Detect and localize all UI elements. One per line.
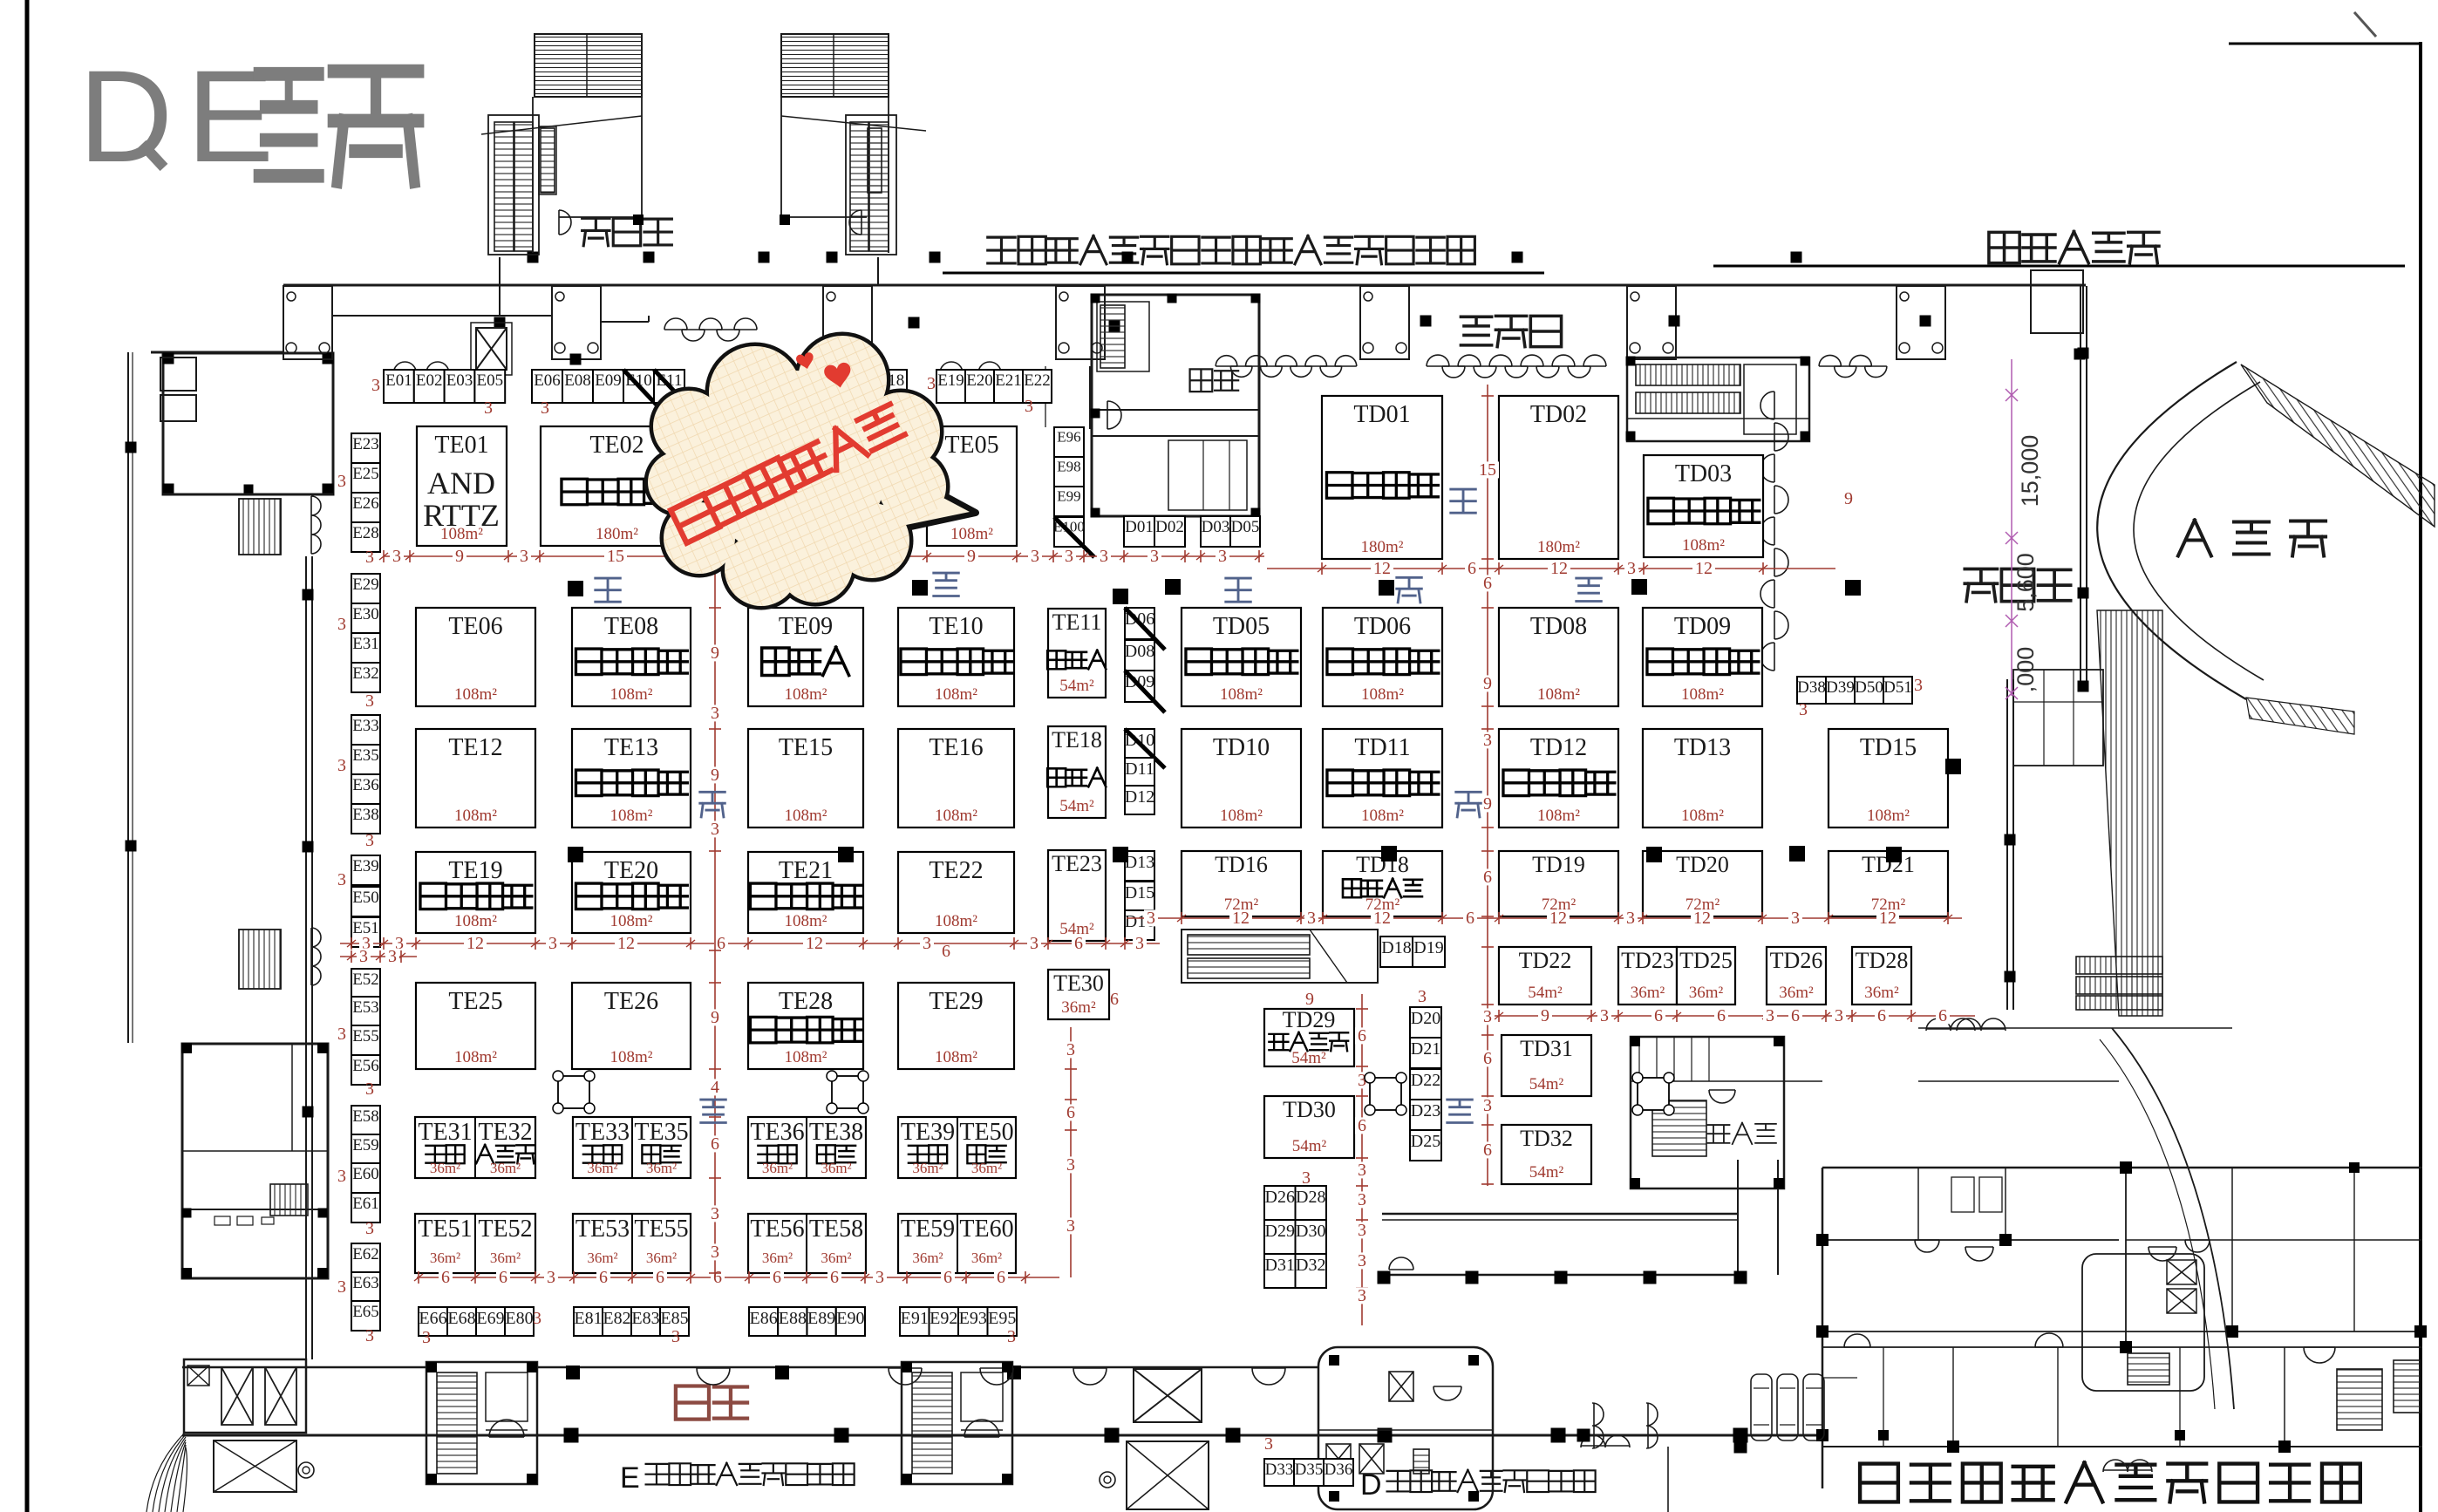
svg-text:3: 3: [371, 376, 380, 395]
svg-text:3: 3: [388, 947, 397, 966]
svg-text:TE21: TE21: [779, 857, 833, 884]
svg-text:3: 3: [1025, 397, 1033, 416]
svg-text:TE05: TE05: [944, 432, 998, 459]
svg-text:TD11: TD11: [1354, 734, 1410, 761]
svg-text:TD10: TD10: [1213, 734, 1270, 761]
svg-text:TE23: TE23: [1052, 851, 1102, 876]
svg-text:3: 3: [337, 1025, 346, 1044]
svg-text:4: 4: [711, 1078, 719, 1097]
svg-text:TD25: TD25: [1679, 948, 1733, 973]
svg-text:108m²: 108m²: [785, 807, 827, 825]
svg-text:6: 6: [711, 1134, 719, 1154]
svg-text:D05: D05: [1231, 518, 1260, 536]
svg-text:9: 9: [711, 1008, 719, 1027]
svg-text:E95: E95: [988, 1309, 1016, 1328]
svg-text:TE35: TE35: [634, 1119, 688, 1146]
svg-text:TE13: TE13: [604, 734, 658, 761]
svg-text:TD03: TD03: [1675, 460, 1732, 487]
svg-text:54m²: 54m²: [1528, 984, 1563, 1002]
svg-text:3: 3: [392, 547, 401, 566]
svg-text:6: 6: [656, 1268, 664, 1287]
svg-text:TE01: TE01: [434, 432, 488, 459]
svg-text:D32: D32: [1296, 1256, 1325, 1275]
svg-text:6: 6: [1938, 1006, 1947, 1025]
svg-text:3: 3: [923, 934, 931, 953]
svg-text:E99: E99: [1057, 487, 1080, 504]
svg-text:15: 15: [1479, 460, 1496, 480]
svg-text:TD16: TD16: [1215, 852, 1268, 877]
svg-text:3: 3: [422, 1328, 431, 1347]
svg-text:TD12: TD12: [1530, 734, 1587, 761]
svg-text:9: 9: [967, 547, 976, 566]
svg-text:180m²: 180m²: [1361, 538, 1404, 556]
svg-text:E38: E38: [352, 806, 379, 824]
svg-text:D36: D36: [1325, 1461, 1353, 1479]
svg-text:3: 3: [337, 472, 346, 491]
svg-text:TE18: TE18: [1052, 727, 1102, 753]
svg-text:3: 3: [365, 691, 374, 711]
svg-text:9: 9: [1483, 794, 1492, 814]
svg-text:E26: E26: [352, 494, 379, 513]
svg-text:TE59: TE59: [901, 1216, 955, 1243]
svg-text:TD22: TD22: [1519, 948, 1572, 973]
svg-text:E01: E01: [385, 371, 412, 390]
svg-text:E58: E58: [352, 1107, 379, 1126]
svg-text:TE11: TE11: [1052, 610, 1102, 635]
svg-text:TD13: TD13: [1674, 734, 1731, 761]
svg-text:TE55: TE55: [634, 1216, 688, 1243]
svg-text:15: 15: [607, 547, 624, 566]
svg-text:3: 3: [1007, 1327, 1016, 1346]
svg-text:E21: E21: [995, 371, 1022, 390]
svg-text:108m²: 108m²: [454, 807, 497, 825]
svg-text:D30: D30: [1296, 1222, 1325, 1241]
svg-text:3: 3: [711, 704, 719, 723]
svg-text:6: 6: [1483, 1049, 1492, 1068]
svg-text:108m²: 108m²: [935, 1048, 977, 1066]
svg-text:3: 3: [1358, 1221, 1366, 1240]
svg-text:54m²: 54m²: [1529, 1075, 1564, 1093]
svg-text:6: 6: [1483, 1141, 1492, 1160]
svg-text:E33: E33: [352, 717, 379, 735]
svg-text:E62: E62: [352, 1245, 379, 1263]
svg-text:108m²: 108m²: [1537, 685, 1580, 704]
svg-text:TE50: TE50: [959, 1119, 1013, 1146]
svg-text:12: 12: [617, 934, 635, 953]
svg-text:TE25: TE25: [448, 988, 502, 1015]
svg-text:TE56: TE56: [750, 1216, 804, 1243]
svg-text:6: 6: [1468, 559, 1476, 578]
svg-text:E52: E52: [352, 971, 379, 989]
svg-text:12: 12: [1232, 909, 1250, 928]
svg-text:3: 3: [1302, 1168, 1311, 1188]
svg-text:E35: E35: [352, 746, 379, 765]
svg-text:3: 3: [1030, 934, 1039, 953]
svg-text:E96: E96: [1057, 428, 1080, 445]
svg-text:3: 3: [1835, 1006, 1843, 1025]
svg-text:6: 6: [1483, 574, 1492, 593]
svg-text:TE53: TE53: [575, 1216, 630, 1243]
svg-text:D33: D33: [1265, 1461, 1294, 1479]
svg-text:E69: E69: [476, 1309, 504, 1328]
svg-text:54m²: 54m²: [1291, 1049, 1326, 1067]
svg-text:D23: D23: [1411, 1101, 1440, 1120]
svg-text:TE39: TE39: [901, 1119, 955, 1146]
svg-text:D15: D15: [1125, 883, 1154, 902]
svg-text:TD08: TD08: [1530, 613, 1587, 640]
svg-text:E50: E50: [352, 889, 379, 907]
svg-text:54m²: 54m²: [1059, 677, 1094, 695]
svg-text:TE51: TE51: [418, 1216, 472, 1243]
svg-text:9: 9: [1483, 674, 1492, 693]
svg-text:TE20: TE20: [604, 857, 658, 884]
svg-text:TE12: TE12: [448, 734, 502, 761]
svg-text:36m²: 36m²: [821, 1160, 851, 1176]
svg-text:D28: D28: [1296, 1188, 1325, 1207]
svg-text:TE02: TE02: [589, 432, 644, 459]
svg-text:D01: D01: [1125, 518, 1154, 536]
svg-text:E98: E98: [1057, 458, 1080, 474]
svg-text:3: 3: [1065, 547, 1073, 566]
svg-text:3: 3: [1147, 909, 1155, 928]
svg-text:6: 6: [1110, 990, 1119, 1009]
svg-text:9: 9: [1541, 1006, 1549, 1025]
svg-text:E30: E30: [352, 605, 379, 623]
svg-text:AND: AND: [427, 466, 495, 501]
svg-text:D25: D25: [1411, 1132, 1440, 1151]
svg-text:TD29: TD29: [1283, 1007, 1336, 1032]
svg-text:3: 3: [1483, 1096, 1492, 1115]
svg-text:E20: E20: [966, 371, 993, 390]
svg-text:TE16: TE16: [929, 734, 983, 761]
svg-text:TE19: TE19: [448, 857, 502, 884]
svg-text:D20: D20: [1411, 1009, 1440, 1028]
svg-text:3: 3: [337, 1167, 346, 1186]
svg-text:3: 3: [1264, 1434, 1273, 1454]
svg-text:3: 3: [365, 1219, 374, 1238]
svg-text:6: 6: [599, 1268, 608, 1287]
svg-text:E66: E66: [419, 1309, 446, 1328]
svg-text:E89: E89: [807, 1309, 835, 1328]
svg-text:,000: ,000: [2012, 647, 2039, 693]
svg-text:3: 3: [365, 548, 374, 567]
svg-text:E36: E36: [352, 776, 379, 794]
svg-text:54m²: 54m²: [1292, 1137, 1327, 1155]
svg-text:3: 3: [1791, 909, 1800, 928]
svg-text:108m²: 108m²: [1867, 807, 1910, 825]
svg-text:3: 3: [484, 398, 493, 418]
svg-text:3: 3: [1150, 547, 1159, 566]
svg-text:E32: E32: [352, 664, 379, 683]
svg-text:3: 3: [671, 1327, 680, 1346]
svg-text:E60: E60: [352, 1165, 379, 1183]
svg-text:3: 3: [359, 947, 368, 966]
svg-text:180m²: 180m²: [596, 525, 638, 543]
svg-text:12: 12: [1373, 909, 1391, 928]
svg-text:TE60: TE60: [959, 1216, 1013, 1243]
svg-text:3: 3: [547, 1268, 555, 1287]
svg-text:6: 6: [1466, 909, 1474, 928]
svg-text:54m²: 54m²: [1059, 797, 1094, 815]
svg-text:E31: E31: [352, 635, 379, 653]
svg-text:54m²: 54m²: [1529, 1163, 1564, 1182]
svg-text:3: 3: [520, 547, 528, 566]
svg-text:3: 3: [1307, 909, 1316, 928]
svg-text:TE52: TE52: [478, 1216, 532, 1243]
svg-text:108m²: 108m²: [1220, 807, 1263, 825]
svg-text:3: 3: [337, 870, 346, 889]
svg-text:108m²: 108m²: [935, 912, 977, 930]
svg-text:E68: E68: [447, 1309, 475, 1328]
svg-text:TD32: TD32: [1520, 1126, 1573, 1151]
svg-text:TD05: TD05: [1213, 613, 1270, 640]
svg-text:36m²: 36m²: [587, 1250, 617, 1266]
svg-text:D03: D03: [1202, 518, 1230, 536]
svg-text:3: 3: [927, 374, 936, 393]
svg-text:36m²: 36m²: [587, 1160, 617, 1176]
svg-text:E91: E91: [901, 1309, 929, 1328]
svg-text:3: 3: [1600, 1006, 1609, 1025]
svg-text:12: 12: [466, 934, 484, 953]
svg-text:E05: E05: [476, 371, 503, 390]
svg-text:6: 6: [1074, 934, 1083, 953]
svg-text:TE58: TE58: [809, 1216, 863, 1243]
svg-text:108m²: 108m²: [785, 1048, 827, 1066]
svg-text:E83: E83: [631, 1309, 659, 1328]
svg-text:E59: E59: [352, 1136, 379, 1154]
svg-text:36m²: 36m²: [490, 1250, 521, 1266]
svg-text:TD20: TD20: [1676, 852, 1729, 877]
svg-text:D08: D08: [1125, 642, 1154, 661]
svg-text:TE09: TE09: [779, 613, 833, 640]
svg-text:108m²: 108m²: [610, 1048, 653, 1066]
svg-text:108m²: 108m²: [454, 1048, 497, 1066]
svg-text:6: 6: [997, 1268, 1005, 1287]
svg-text:9: 9: [455, 547, 464, 566]
svg-text:D21: D21: [1411, 1039, 1440, 1059]
svg-text:E55: E55: [352, 1027, 379, 1045]
svg-text:3: 3: [1358, 1161, 1366, 1180]
svg-text:D11: D11: [1125, 759, 1154, 779]
svg-text:36m²: 36m²: [971, 1160, 1002, 1176]
svg-text:TD02: TD02: [1530, 401, 1587, 428]
svg-text:36m²: 36m²: [1779, 984, 1814, 1002]
svg-text:TE31: TE31: [418, 1119, 472, 1146]
svg-text:TE08: TE08: [604, 613, 658, 640]
svg-text:12: 12: [1693, 909, 1711, 928]
svg-text:D29: D29: [1265, 1222, 1295, 1241]
svg-text:3: 3: [1358, 1190, 1366, 1209]
svg-text:D51: D51: [1883, 678, 1912, 697]
svg-text:15,000: 15,000: [2017, 435, 2043, 507]
svg-text:3: 3: [365, 1326, 374, 1345]
svg-text:12: 12: [1550, 559, 1568, 578]
svg-text:3: 3: [1627, 559, 1636, 578]
svg-text:E80: E80: [505, 1309, 533, 1328]
svg-text:3: 3: [1218, 547, 1227, 566]
svg-text:3: 3: [365, 1080, 374, 1099]
svg-text:36m²: 36m²: [646, 1250, 677, 1266]
svg-text:TE28: TE28: [779, 988, 833, 1015]
svg-text:TD26: TD26: [1770, 948, 1823, 973]
svg-text:TE06: TE06: [448, 613, 502, 640]
svg-text:3: 3: [1066, 1040, 1075, 1059]
svg-text:12: 12: [1549, 909, 1567, 928]
svg-text:TE36: TE36: [750, 1119, 804, 1146]
svg-text:108m²: 108m²: [610, 912, 653, 930]
svg-text:D02: D02: [1155, 518, 1184, 536]
svg-text:TD19: TD19: [1532, 852, 1585, 877]
svg-text:E02: E02: [416, 371, 443, 390]
svg-text:D13: D13: [1125, 853, 1154, 872]
svg-text:6: 6: [1717, 1006, 1726, 1025]
svg-text:36m²: 36m²: [912, 1160, 943, 1176]
svg-text:6: 6: [499, 1268, 507, 1287]
svg-text:D35: D35: [1295, 1461, 1324, 1479]
svg-text:TE10: TE10: [929, 613, 983, 640]
svg-text:E86: E86: [750, 1309, 778, 1328]
svg-text:108m²: 108m²: [935, 685, 977, 704]
svg-text:36m²: 36m²: [912, 1250, 943, 1266]
svg-text:36m²: 36m²: [1061, 998, 1096, 1017]
svg-text:3: 3: [1135, 934, 1144, 953]
svg-text:D31: D31: [1265, 1256, 1295, 1275]
svg-text:E08: E08: [564, 371, 591, 390]
svg-text:TE38: TE38: [809, 1119, 863, 1146]
svg-text:E82: E82: [603, 1309, 630, 1328]
svg-text:E53: E53: [352, 998, 379, 1017]
svg-text:6: 6: [1791, 1006, 1800, 1025]
svg-text:108m²: 108m²: [1682, 536, 1725, 555]
svg-text:6: 6: [943, 1268, 952, 1287]
svg-text:TD31: TD31: [1520, 1036, 1573, 1061]
svg-text:E88: E88: [779, 1309, 807, 1328]
svg-text:E03: E03: [446, 371, 473, 390]
svg-text:36m²: 36m²: [1864, 984, 1899, 1002]
svg-text:3: 3: [541, 398, 549, 418]
svg-text:5,600: 5,600: [2012, 553, 2039, 612]
svg-text:E25: E25: [352, 465, 379, 483]
svg-text:36m²: 36m²: [762, 1250, 793, 1266]
svg-text:E09: E09: [595, 371, 622, 390]
svg-text:RTTZ: RTTZ: [423, 498, 500, 533]
svg-text:36m²: 36m²: [646, 1160, 677, 1176]
svg-text:E85: E85: [660, 1309, 688, 1328]
svg-text:108m²: 108m²: [1681, 685, 1724, 704]
svg-text:3: 3: [337, 756, 346, 775]
svg-text:36m²: 36m²: [1631, 984, 1665, 1002]
svg-text:108m²: 108m²: [785, 685, 827, 704]
svg-text:TE29: TE29: [929, 988, 983, 1015]
svg-text:E19: E19: [937, 371, 964, 390]
svg-text:3: 3: [1031, 547, 1039, 566]
svg-text:6: 6: [1358, 1116, 1366, 1135]
svg-text:108m²: 108m²: [935, 807, 977, 825]
svg-text:12: 12: [1879, 909, 1897, 928]
svg-text:3: 3: [1483, 1007, 1492, 1026]
svg-text:D39: D39: [1826, 678, 1855, 697]
svg-text:3: 3: [711, 820, 719, 839]
svg-text:TE26: TE26: [604, 988, 658, 1015]
svg-text:108m²: 108m²: [785, 912, 827, 930]
svg-text:6: 6: [773, 1268, 781, 1287]
svg-text:3: 3: [1626, 909, 1635, 928]
svg-text:E: E: [620, 1461, 640, 1495]
svg-text:3: 3: [711, 1243, 719, 1262]
svg-text:E93: E93: [959, 1309, 987, 1328]
svg-text:108m²: 108m²: [610, 807, 653, 825]
svg-text:3: 3: [1358, 1251, 1366, 1270]
svg-text:108m²: 108m²: [454, 685, 497, 704]
svg-text:E29: E29: [352, 576, 379, 594]
svg-text:E56: E56: [352, 1057, 379, 1075]
svg-text:3: 3: [1358, 1286, 1366, 1305]
svg-text:36m²: 36m²: [430, 1250, 460, 1266]
svg-text:6: 6: [1654, 1006, 1663, 1025]
svg-text:E28: E28: [352, 524, 379, 542]
svg-text:E61: E61: [352, 1195, 379, 1213]
svg-text:108m²: 108m²: [1361, 807, 1404, 825]
svg-text:36m²: 36m²: [821, 1250, 851, 1266]
svg-text:3: 3: [1766, 1006, 1774, 1025]
svg-text:3: 3: [1100, 547, 1108, 566]
svg-text:D22: D22: [1411, 1071, 1440, 1090]
svg-text:3: 3: [337, 615, 346, 634]
svg-text:3: 3: [875, 1268, 884, 1287]
svg-text:TE15: TE15: [779, 734, 833, 761]
svg-text:36m²: 36m²: [430, 1160, 460, 1176]
svg-text:3: 3: [1483, 731, 1492, 750]
svg-text:36m²: 36m²: [490, 1160, 521, 1176]
svg-text:D19: D19: [1413, 938, 1443, 957]
svg-text:12: 12: [1373, 559, 1391, 578]
svg-text:TD30: TD30: [1283, 1097, 1336, 1122]
svg-text:3: 3: [711, 1204, 719, 1223]
svg-text:180m²: 180m²: [1537, 538, 1580, 556]
svg-text:108m²: 108m²: [454, 912, 497, 930]
svg-text:TD06: TD06: [1354, 613, 1411, 640]
svg-text:E23: E23: [352, 435, 379, 453]
svg-text:TD09: TD09: [1674, 613, 1731, 640]
svg-text:3: 3: [1066, 1216, 1075, 1236]
svg-text:108m²: 108m²: [1220, 685, 1263, 704]
svg-text:E81: E81: [574, 1309, 602, 1328]
svg-text:TE33: TE33: [575, 1119, 630, 1146]
svg-text:E06: E06: [534, 371, 561, 390]
svg-text:12: 12: [806, 934, 823, 953]
svg-text:9: 9: [1305, 990, 1314, 1009]
svg-text:E92: E92: [930, 1309, 957, 1328]
svg-text:108m²: 108m²: [1537, 807, 1580, 825]
svg-text:E63: E63: [352, 1274, 379, 1292]
svg-text:9: 9: [1844, 489, 1853, 508]
svg-text:E22: E22: [1024, 371, 1051, 390]
svg-text:E90: E90: [836, 1309, 864, 1328]
svg-text:D38: D38: [1797, 678, 1826, 697]
svg-text:9: 9: [711, 644, 719, 663]
svg-text:108m²: 108m²: [1681, 807, 1724, 825]
svg-text:6: 6: [830, 1268, 839, 1287]
svg-text:12: 12: [1695, 559, 1713, 578]
svg-text:3: 3: [1799, 700, 1808, 719]
svg-text:E65: E65: [352, 1303, 379, 1321]
svg-text:6: 6: [441, 1268, 450, 1287]
svg-text:3: 3: [365, 831, 374, 850]
svg-text:6: 6: [1358, 1026, 1366, 1045]
svg-text:D12: D12: [1125, 787, 1154, 807]
svg-text:36m²: 36m²: [971, 1250, 1002, 1266]
svg-text:108m²: 108m²: [950, 525, 993, 543]
